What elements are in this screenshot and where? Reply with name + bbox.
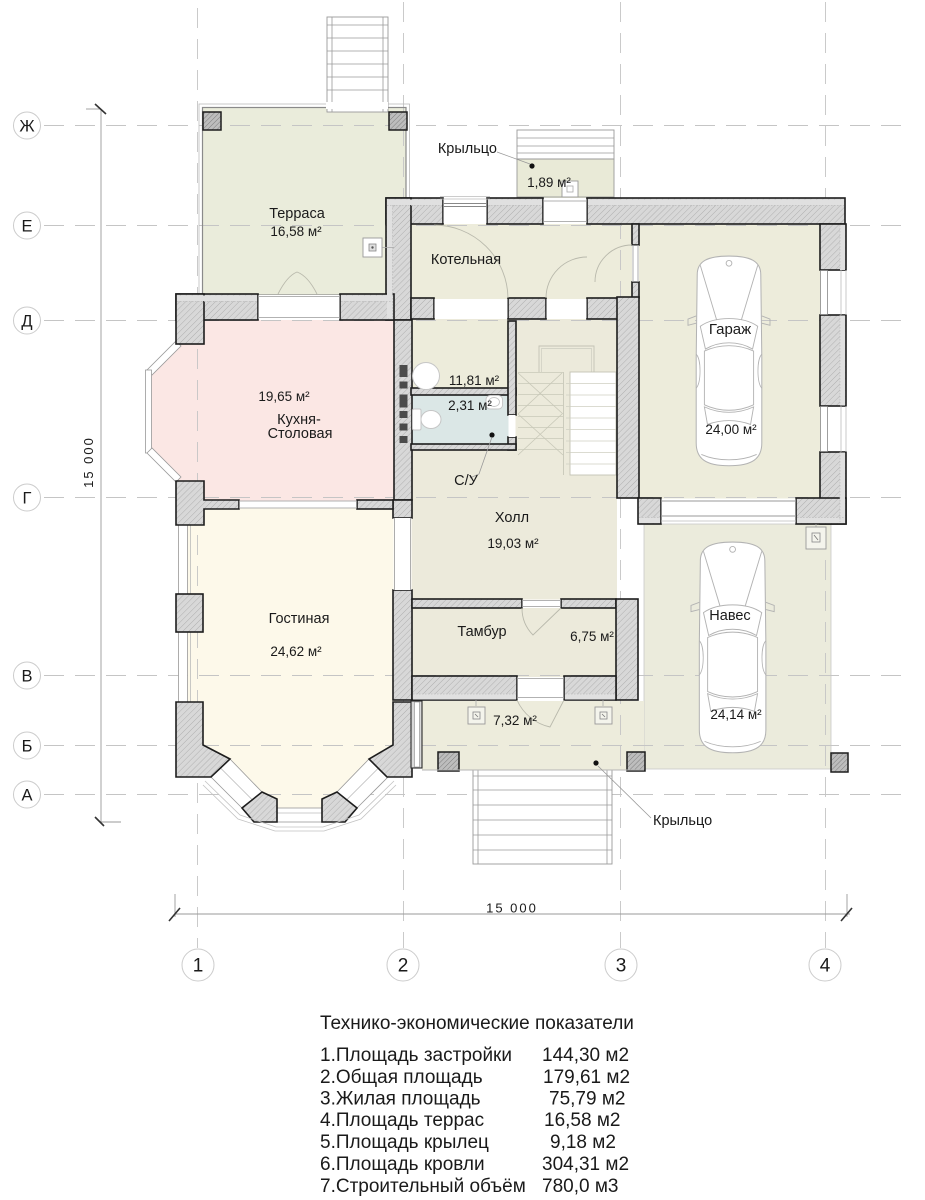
svg-text:Тамбур: Тамбур xyxy=(457,624,506,640)
svg-text:1: 1 xyxy=(193,956,204,977)
svg-text:75,79 м2: 75,79 м2 xyxy=(549,1089,625,1110)
svg-text:16,58 м2: 16,58 м2 xyxy=(544,1110,620,1131)
svg-text:2.Общая площадь: 2.Общая площадь xyxy=(320,1067,483,1088)
svg-text:780,0 м3: 780,0 м3 xyxy=(542,1176,618,1197)
svg-text:3: 3 xyxy=(616,956,627,977)
svg-text:Б: Б xyxy=(22,738,33,756)
svg-text:Технико-экономические показате: Технико-экономические показатели xyxy=(320,1013,634,1034)
svg-text:19,03 м²: 19,03 м² xyxy=(487,536,539,551)
svg-text:7,32 м²: 7,32 м² xyxy=(493,713,537,728)
svg-text:15 000: 15 000 xyxy=(486,901,538,916)
svg-text:24,62 м²: 24,62 м² xyxy=(270,644,322,659)
svg-text:24,14 м²: 24,14 м² xyxy=(710,707,762,722)
svg-text:144,30 м2: 144,30 м2 xyxy=(542,1045,629,1066)
svg-text:15 000: 15 000 xyxy=(81,436,96,488)
svg-text:Котельная: Котельная xyxy=(431,252,501,268)
svg-text:В: В xyxy=(21,668,32,686)
svg-text:Г: Г xyxy=(23,490,32,508)
svg-text:2,31 м²: 2,31 м² xyxy=(448,398,492,413)
svg-text:16,58 м²: 16,58 м² xyxy=(270,224,322,239)
svg-text:4.Площадь террас: 4.Площадь террас xyxy=(320,1110,484,1131)
svg-text:19,65 м²: 19,65 м² xyxy=(258,389,310,404)
svg-text:Гостиная: Гостиная xyxy=(269,611,330,627)
svg-text:Гараж: Гараж xyxy=(709,321,751,338)
svg-text:6,75 м²: 6,75 м² xyxy=(570,629,614,644)
svg-text:Терраса: Терраса xyxy=(269,206,326,222)
svg-text:7.Строительный объём: 7.Строительный объём xyxy=(320,1176,526,1197)
svg-text:3.Жилая площадь: 3.Жилая площадь xyxy=(320,1089,481,1110)
svg-text:С/У: С/У xyxy=(454,473,479,489)
svg-text:Навес: Навес xyxy=(709,608,750,624)
svg-text:Е: Е xyxy=(21,218,32,236)
svg-text:Холл: Холл xyxy=(495,510,529,526)
svg-text:4: 4 xyxy=(820,956,831,977)
svg-text:Крыльцо: Крыльцо xyxy=(653,813,712,829)
svg-text:5.Площадь крылец: 5.Площадь крылец xyxy=(320,1132,489,1153)
svg-text:Крыльцо: Крыльцо xyxy=(438,141,497,157)
svg-text:9,18 м2: 9,18 м2 xyxy=(550,1132,616,1153)
svg-text:Д: Д xyxy=(21,313,32,331)
svg-text:А: А xyxy=(21,787,32,805)
svg-text:179,61 м2: 179,61 м2 xyxy=(543,1067,630,1088)
svg-text:2: 2 xyxy=(398,956,409,977)
svg-text:Столовая: Столовая xyxy=(268,426,333,442)
svg-text:6.Площадь кровли: 6.Площадь кровли xyxy=(320,1154,485,1175)
svg-text:304,31 м2: 304,31 м2 xyxy=(542,1154,629,1175)
svg-text:24,00 м²: 24,00 м² xyxy=(705,422,757,437)
svg-text:11,81 м²: 11,81 м² xyxy=(449,373,500,388)
svg-text:1,89 м²: 1,89 м² xyxy=(527,175,571,190)
svg-text:Ж: Ж xyxy=(19,118,35,136)
svg-text:1.Площадь застройки: 1.Площадь застройки xyxy=(320,1045,512,1066)
